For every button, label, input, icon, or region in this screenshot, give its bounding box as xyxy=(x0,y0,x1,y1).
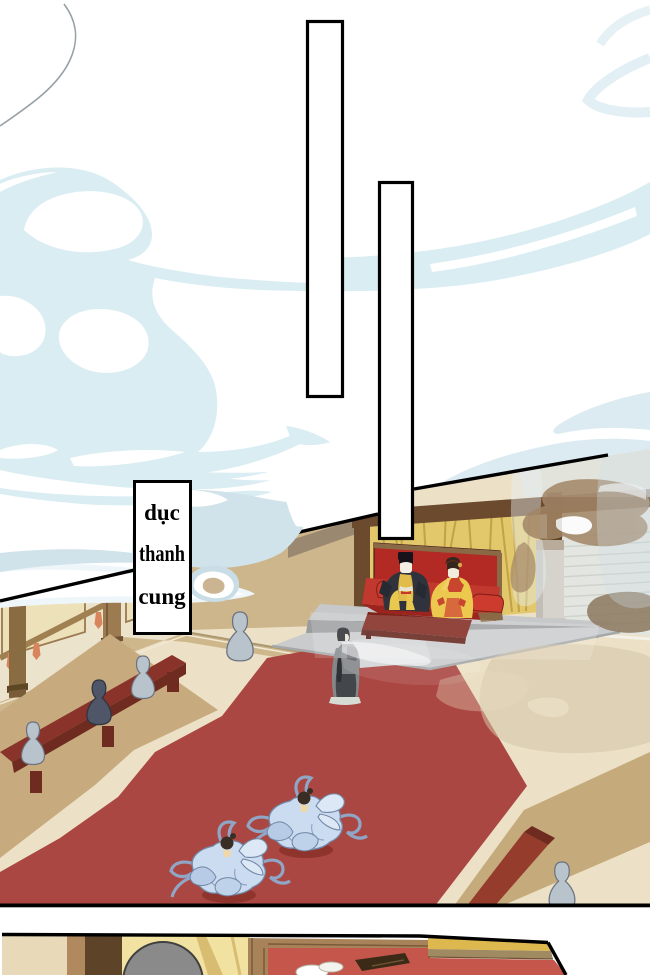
svg-text:cung: cung xyxy=(138,584,186,609)
svg-text:thanh: thanh xyxy=(139,541,185,566)
svg-text:dục: dục xyxy=(144,500,180,525)
